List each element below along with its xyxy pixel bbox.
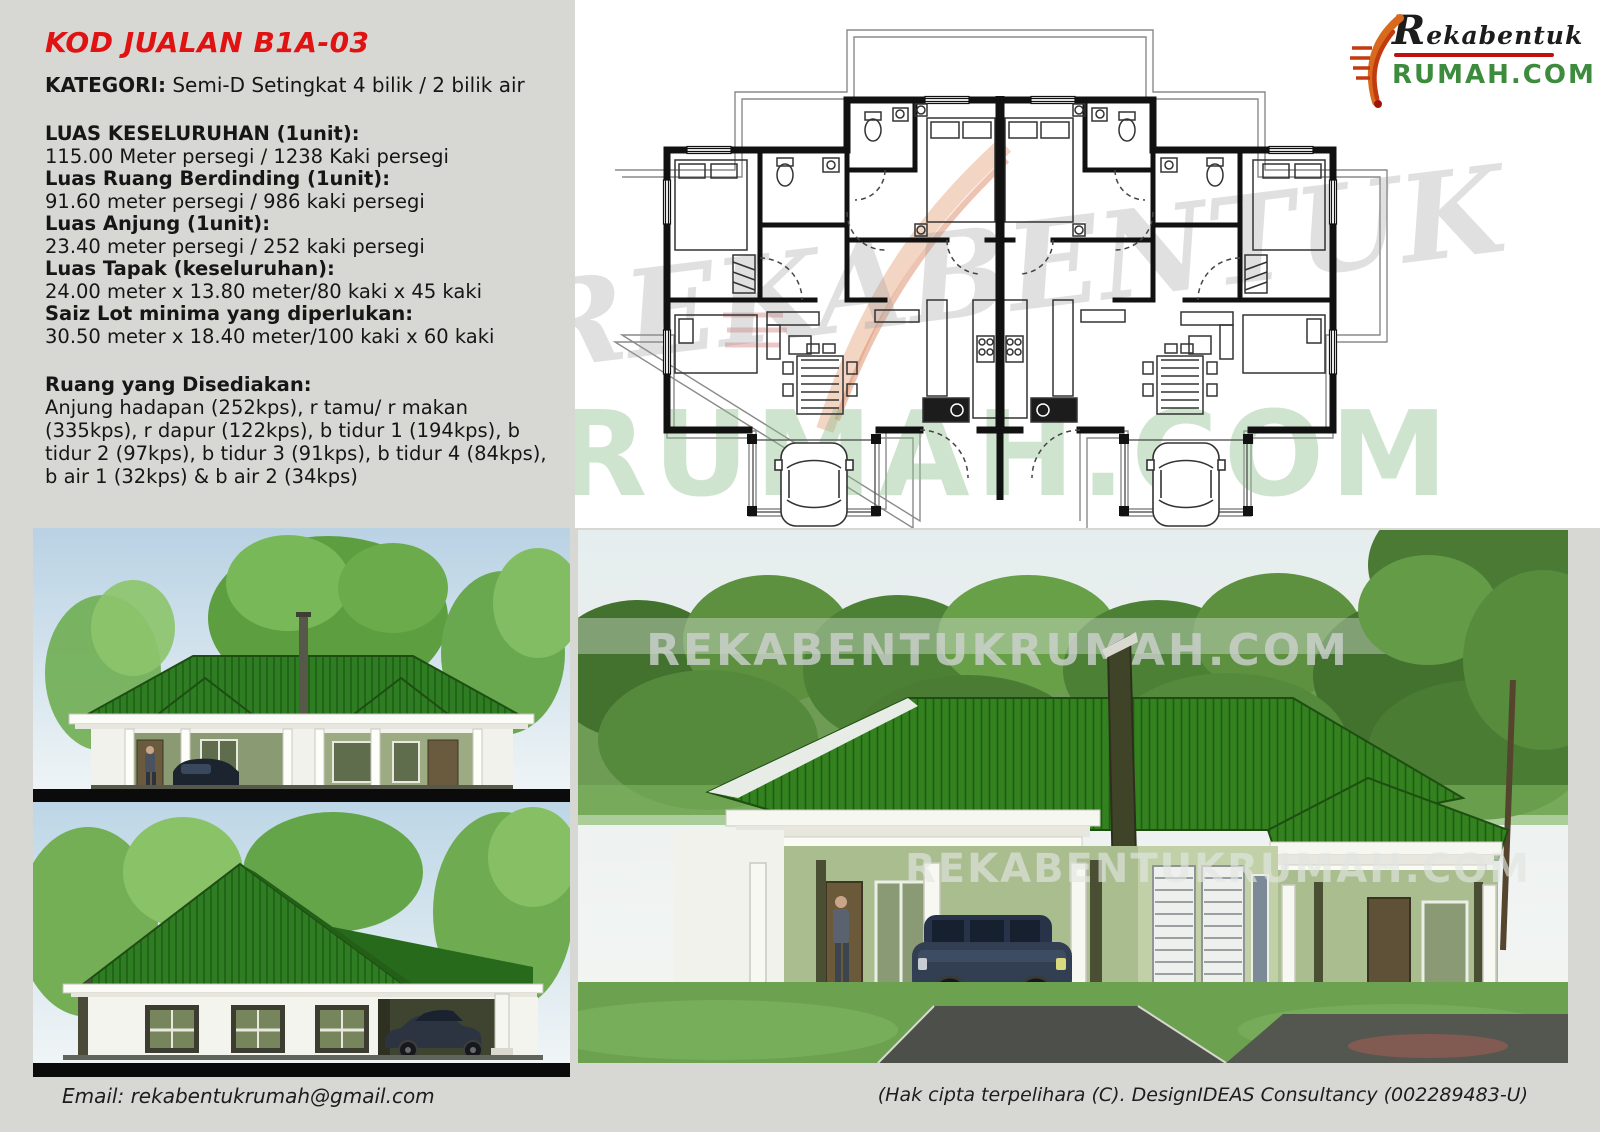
logo-wordmark: Rekabentuk: [1392, 14, 1582, 53]
person-figure: [833, 896, 849, 985]
grounds: [578, 982, 1568, 1063]
spec-sheet: KOD JUALAN B1A-03 KATEGORI: Semi-D Setin…: [45, 26, 565, 488]
svg-text:RUMAH.COM: RUMAH.COM: [575, 385, 1454, 523]
front-elevation-render: [33, 528, 570, 802]
sales-code-title: KOD JUALAN B1A-03: [45, 26, 565, 59]
logo-domain: RUMAH.COM: [1392, 60, 1582, 90]
watermark-text: REKABENTUKRUMAH.COM: [905, 846, 1531, 892]
category-line: KATEGORI: Semi-D Setingkat 4 bilik / 2 b…: [45, 73, 565, 97]
plan-watermark: REKABENTUK RUMAH.COM: [575, 138, 1517, 523]
rooms-provided: Ruang yang Disediakan: Anjung hadapan (2…: [45, 373, 565, 488]
logo-swoosh-icon: [1348, 10, 1408, 110]
side-elevation-render: [33, 802, 570, 1077]
watermark-text: REKABENTUKRUMAH.COM: [646, 625, 1350, 676]
footer-email: Email: rekabentukrumah@gmail.com: [62, 1084, 435, 1108]
spec-item: LUAS KESELURUHAN (1unit): 115.00 Meter p…: [45, 123, 565, 348]
side-windows: [145, 1005, 369, 1053]
company-logo: Rekabentuk RUMAH.COM: [1392, 14, 1582, 90]
footer-copyright: (Hak cipta terpelihara (C). DesignIDEAS …: [878, 1084, 1528, 1106]
category-value: Semi-D Setingkat 4 bilik / 2 bilik air: [166, 73, 525, 97]
brochure-page: { "info": { "code_title": "KOD JUALAN B1…: [0, 0, 1600, 1132]
category-label: KATEGORI:: [45, 73, 166, 97]
party-wall: [996, 96, 1005, 430]
perspective-render: REKABENTUKRUMAH.COM: [578, 530, 1568, 1063]
